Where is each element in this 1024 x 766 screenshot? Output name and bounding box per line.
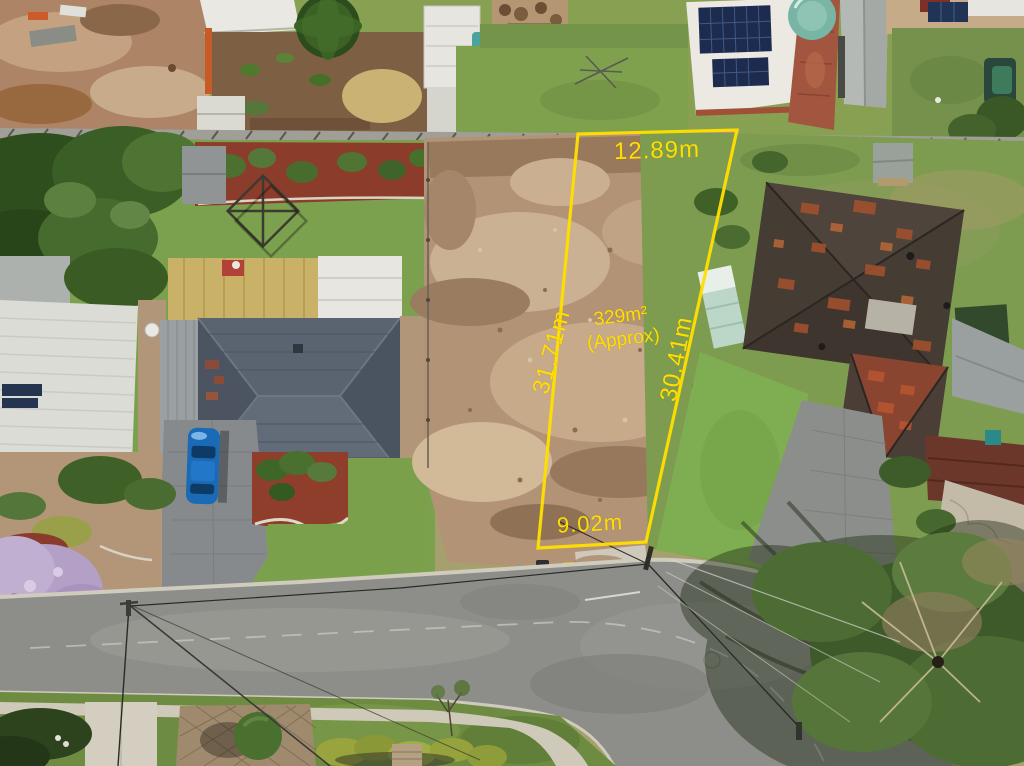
dimension-label-bottom: 9.02m xyxy=(556,509,623,538)
lot-boundary-overlay xyxy=(0,0,1024,766)
dimension-label-top: 12.89m xyxy=(614,136,701,166)
aerial-photo: 12.89m 31.71m 30.41m 9.02m 329m² (Approx… xyxy=(0,0,1024,766)
lot-area-label: 329m² (Approx) xyxy=(583,301,661,356)
